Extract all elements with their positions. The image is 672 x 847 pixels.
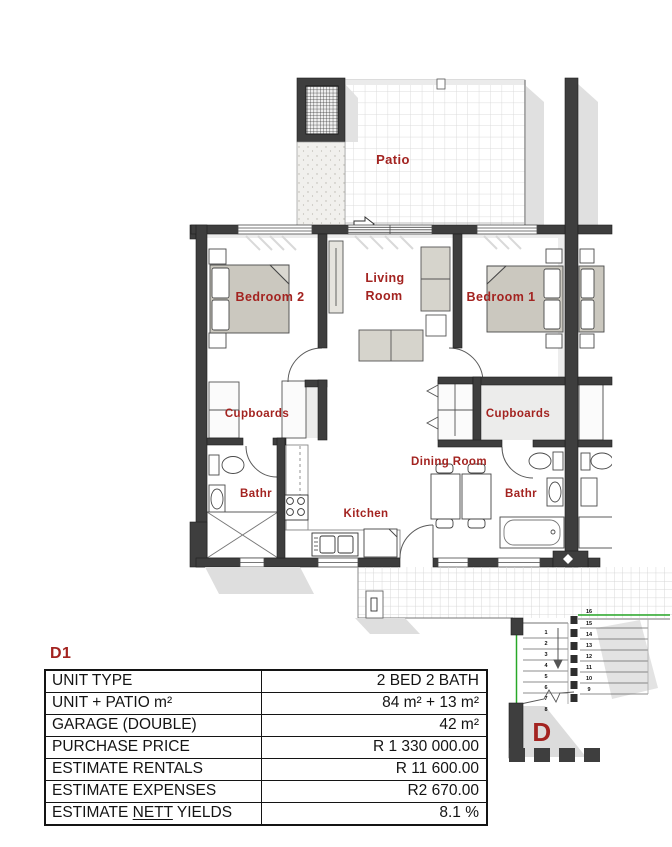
row-value: R2 670.00 bbox=[261, 781, 486, 802]
bedroom2-window bbox=[238, 225, 312, 234]
dining-room-label: Dining Room bbox=[411, 456, 487, 468]
neighbour-unit-sliver bbox=[579, 249, 643, 548]
row-value: 42 m² bbox=[261, 715, 486, 736]
table-row: ESTIMATE RENTALS R 11 600.00 bbox=[46, 758, 486, 780]
stair-step-number: 10 bbox=[586, 676, 592, 682]
floorplan-page: Patio bbox=[0, 0, 672, 847]
block-label: D bbox=[532, 717, 551, 747]
patio-marker bbox=[437, 79, 445, 89]
stair-step-number: 1 bbox=[544, 630, 547, 636]
table-row: UNIT TYPE 2 BED 2 BATH bbox=[46, 671, 486, 692]
cupboards-left-label: Cupboards bbox=[225, 408, 289, 420]
nett-prefix: ESTIMATE bbox=[52, 804, 133, 821]
row-label: GARAGE (DOUBLE) bbox=[46, 715, 261, 736]
bedroom1-window bbox=[477, 225, 537, 234]
bedroom1-label: Bedroom 1 bbox=[467, 290, 536, 304]
row-label: UNIT TYPE bbox=[46, 671, 261, 692]
row-label: UNIT + PATIO m² bbox=[46, 693, 261, 714]
stairwell: 1 2 3 4 5 6 7 8 16 15 14 13 12 11 10 9 D bbox=[509, 609, 670, 758]
patio-slider-door bbox=[348, 225, 432, 234]
walkway bbox=[205, 567, 672, 634]
stair-step-number: 6 bbox=[544, 685, 547, 691]
row-value: 84 m² + 13 m² bbox=[261, 693, 486, 714]
row-label: ESTIMATE EXPENSES bbox=[46, 781, 261, 802]
table-row: GARAGE (DOUBLE) 42 m² bbox=[46, 714, 486, 736]
patio-edge-shadow bbox=[526, 86, 544, 228]
nett-underlined: NETT bbox=[133, 804, 173, 821]
kitchen-fridge bbox=[364, 529, 397, 557]
stair-step-number: 11 bbox=[586, 665, 592, 671]
stair-step-number: 5 bbox=[544, 674, 547, 680]
stair-down-arrow-icon bbox=[554, 628, 562, 668]
row-label: ESTIMATE NETT YIELDS bbox=[46, 803, 261, 824]
bath1-label: Bathr bbox=[240, 488, 272, 500]
row-label: ESTIMATE RENTALS bbox=[46, 759, 261, 780]
row-value: 2 BED 2 BATH bbox=[261, 671, 486, 692]
stair-step-number: 14 bbox=[586, 632, 593, 638]
table-row: UNIT + PATIO m² 84 m² + 13 m² bbox=[46, 692, 486, 714]
stair-step-number: 9 bbox=[587, 687, 590, 693]
kitchen-sink bbox=[312, 533, 358, 556]
unit-id-label: D1 bbox=[50, 645, 488, 663]
stair-step-number: 16 bbox=[586, 609, 592, 615]
patio-louvre-screen bbox=[297, 78, 345, 142]
unit-summary-card: D1 UNIT TYPE 2 BED 2 BATH UNIT + PATIO m… bbox=[44, 645, 488, 826]
table-row-nett-yields: ESTIMATE NETT YIELDS 8.1 % bbox=[46, 802, 486, 824]
row-value: R 1 330 000.00 bbox=[261, 737, 486, 758]
nett-suffix: YIELDS bbox=[173, 804, 232, 821]
row-label: PURCHASE PRICE bbox=[46, 737, 261, 758]
unit-details-table: UNIT TYPE 2 BED 2 BATH UNIT + PATIO m² 8… bbox=[44, 669, 488, 826]
row-value: 8.1 % bbox=[261, 803, 486, 824]
stair-step-number: 15 bbox=[586, 621, 592, 627]
living-room-label-line1: Living bbox=[365, 271, 404, 285]
stair-step-number: 3 bbox=[544, 652, 547, 658]
kitchen-label: Kitchen bbox=[344, 508, 389, 520]
stair-step-number: 4 bbox=[544, 663, 548, 669]
patio-area: Patio bbox=[297, 78, 544, 231]
stair-step-number: 8 bbox=[544, 707, 547, 713]
stair-step-number: 2 bbox=[544, 641, 547, 647]
bedroom2-label: Bedroom 2 bbox=[236, 290, 305, 304]
cupboards-right-label: Cupboards bbox=[486, 408, 550, 420]
stair-step-number: 13 bbox=[586, 643, 592, 649]
patio-label: Patio bbox=[376, 152, 410, 167]
table-row: PURCHASE PRICE R 1 330 000.00 bbox=[46, 736, 486, 758]
living-room-label-line2: Room bbox=[365, 289, 402, 303]
stair-step-number: 12 bbox=[586, 654, 592, 660]
stair-step-number: 7 bbox=[544, 696, 547, 702]
table-row: ESTIMATE EXPENSES R2 670.00 bbox=[46, 780, 486, 802]
party-wall bbox=[565, 78, 578, 567]
row-value: R 11 600.00 bbox=[261, 759, 486, 780]
bath2-label: Bathr bbox=[505, 488, 537, 500]
